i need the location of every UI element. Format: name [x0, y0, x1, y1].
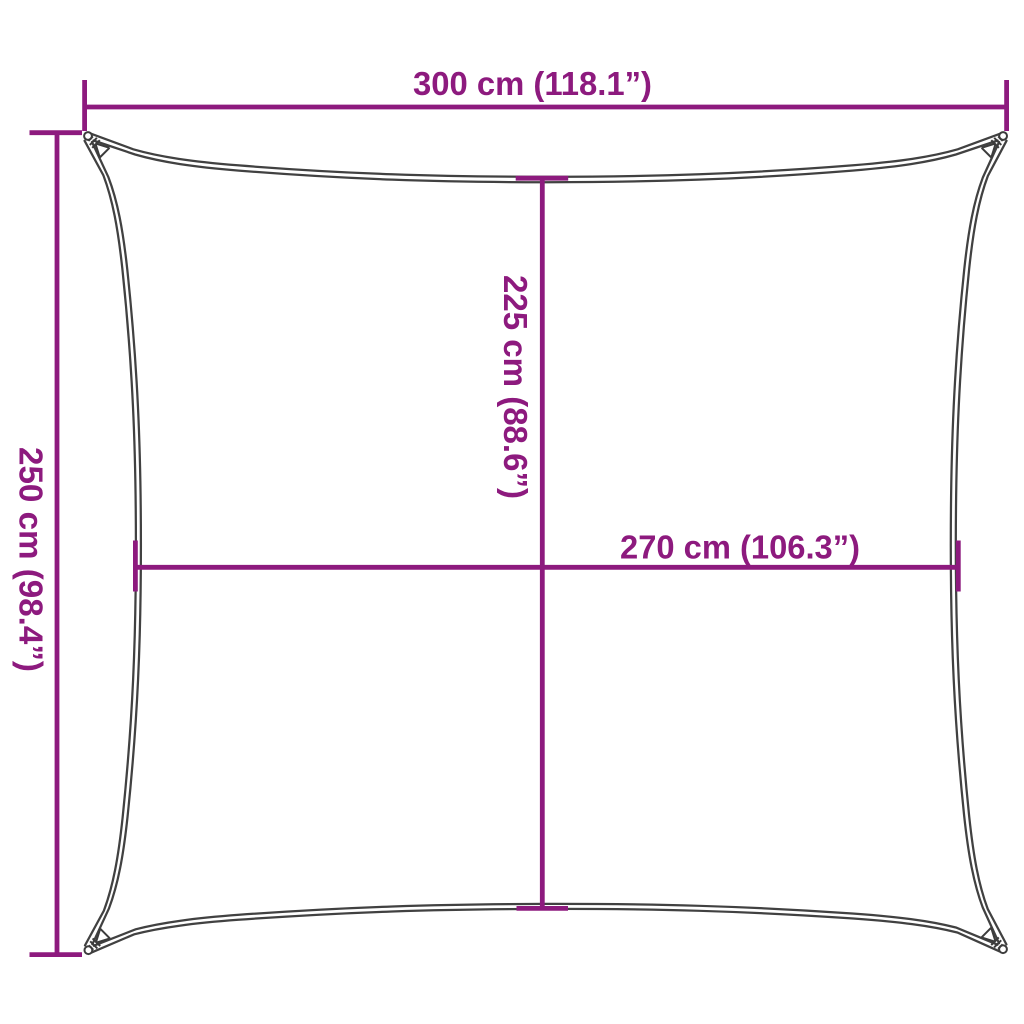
svg-text:270 cm (106.3”): 270 cm (106.3”)	[620, 528, 860, 565]
svg-text:250 cm (98.4”): 250 cm (98.4”)	[12, 447, 49, 672]
svg-text:300 cm (118.1”): 300 cm (118.1”)	[413, 65, 652, 102]
svg-text:225 cm (88.6”): 225 cm (88.6”)	[497, 275, 534, 499]
